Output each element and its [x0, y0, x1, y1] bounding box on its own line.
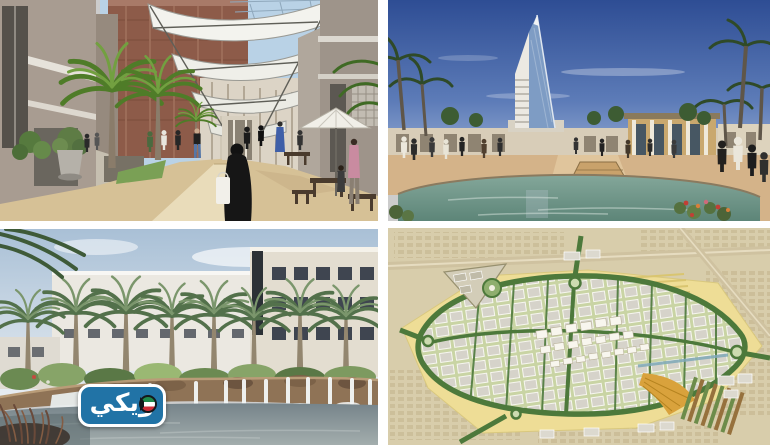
tower-plaza-image — [388, 0, 770, 221]
waterfall-lake-image — [0, 229, 378, 445]
panel-master-plan — [388, 228, 770, 445]
panel-promenade — [0, 0, 378, 221]
wiki-watermark-badge: ويكي — [78, 384, 166, 427]
photo-collage: ويكي — [0, 0, 770, 445]
promenade-image — [0, 0, 378, 221]
panel-waterfall-lake: ويكي — [0, 229, 378, 445]
panel-tower-plaza — [388, 0, 770, 221]
master-plan-image — [388, 228, 770, 445]
kuwait-flag-icon — [139, 395, 157, 413]
